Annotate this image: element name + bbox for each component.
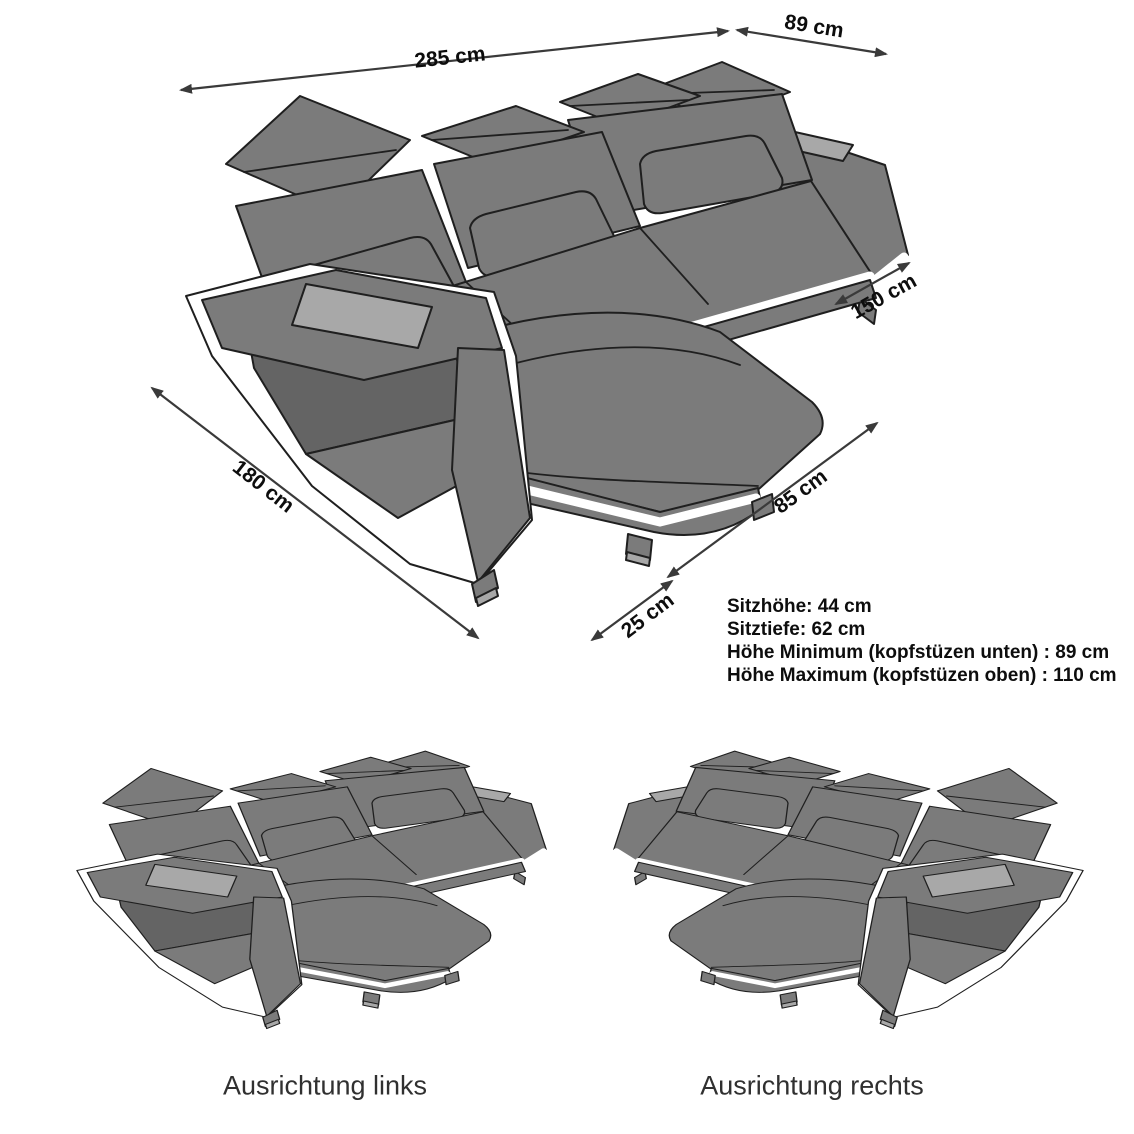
variant-caption-links: Ausrichtung links: [223, 1071, 427, 1102]
spec-hoehe-minimum: Höhe Minimum (kopfstüzen unten) : 89 cm: [727, 641, 1117, 664]
spec-sitzhoehe: Sitzhöhe: 44 cm: [727, 595, 1117, 618]
diagram-canvas: [0, 0, 1134, 1134]
variant-caption-rechts: Ausrichtung rechts: [700, 1071, 924, 1102]
sofa-illustration-links: [77, 751, 546, 1028]
sofa-illustration-main: [186, 62, 908, 606]
sofa-dimension-diagram: 285 cm 89 cm 150 cm 180 cm 85 cm 25 cm S…: [0, 0, 1134, 1134]
spec-sitztiefe: Sitztiefe: 62 cm: [727, 618, 1117, 641]
spec-block: Sitzhöhe: 44 cm Sitztiefe: 62 cm Höhe Mi…: [727, 595, 1117, 687]
sofa-illustration-rechts: [614, 751, 1083, 1028]
spec-hoehe-maximum: Höhe Maximum (kopfstüzen oben) : 110 cm: [727, 664, 1117, 687]
